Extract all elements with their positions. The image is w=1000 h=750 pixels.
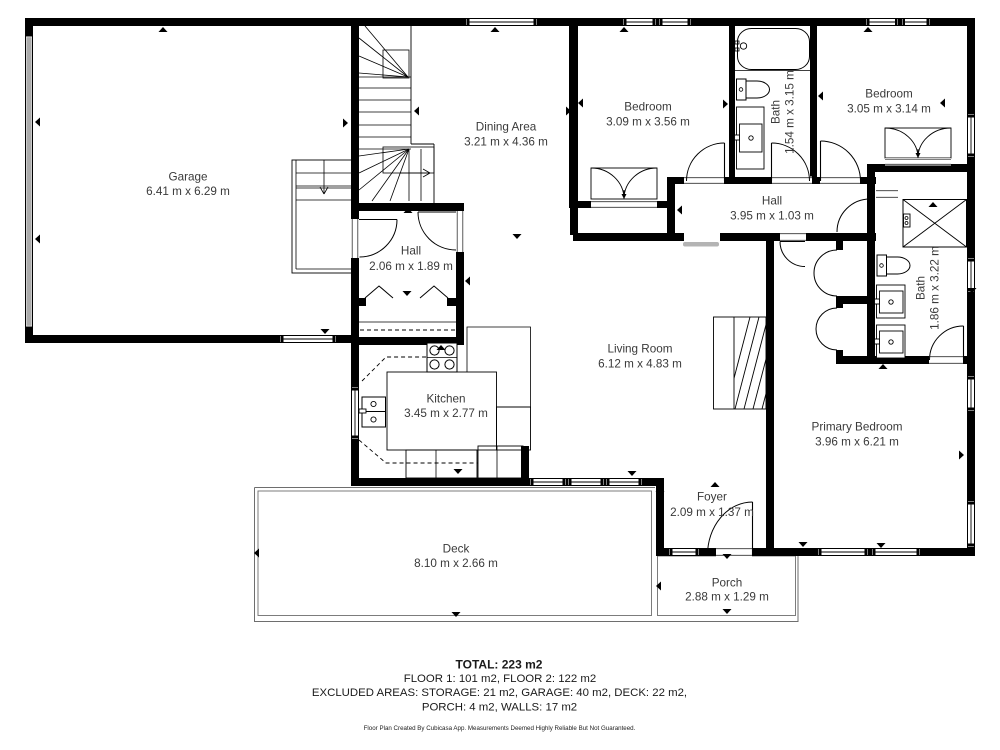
svg-text:Deck: Deck xyxy=(443,543,470,556)
svg-text:6.41 m x 6.29 m: 6.41 m x 6.29 m xyxy=(146,185,230,198)
svg-text:Primary Bedroom: Primary Bedroom xyxy=(812,421,903,434)
svg-text:2.06 m x 1.89 m: 2.06 m x 1.89 m xyxy=(369,260,453,273)
svg-text:PORCH: 4 m2, WALLS: 17 m2: PORCH: 4 m2, WALLS: 17 m2 xyxy=(422,702,577,714)
svg-text:EXCLUDED AREAS: STORAGE: 21 m2: EXCLUDED AREAS: STORAGE: 21 m2, GARAGE: … xyxy=(312,687,687,699)
svg-text:3.96 m x 6.21 m: 3.96 m x 6.21 m xyxy=(815,436,899,449)
svg-text:3.05 m x 3.14 m: 3.05 m x 3.14 m xyxy=(847,103,931,116)
svg-text:Porch: Porch xyxy=(712,577,743,590)
svg-text:Dining Area: Dining Area xyxy=(476,121,537,134)
svg-text:Hall: Hall xyxy=(762,195,782,208)
svg-text:Bath: Bath xyxy=(915,276,928,300)
svg-text:FLOOR 1: 101 m2, FLOOR 2: 122: FLOOR 1: 101 m2, FLOOR 2: 122 m2 xyxy=(404,673,596,685)
svg-text:3.45 m x 2.77 m: 3.45 m x 2.77 m xyxy=(404,407,488,420)
svg-text:8.10 m x 2.66 m: 8.10 m x 2.66 m xyxy=(414,557,498,570)
svg-text:1.86 m x 3.22 m: 1.86 m x 3.22 m xyxy=(929,246,942,330)
svg-text:3.21 m x 4.36 m: 3.21 m x 4.36 m xyxy=(464,136,548,149)
svg-text:Hall: Hall xyxy=(401,245,421,258)
svg-text:6.12 m x 4.83 m: 6.12 m x 4.83 m xyxy=(598,358,682,371)
svg-text:Kitchen: Kitchen xyxy=(427,393,466,406)
svg-text:1.54 m x 3.15 m: 1.54 m x 3.15 m xyxy=(784,70,797,154)
svg-text:2.88 m x 1.29 m: 2.88 m x 1.29 m xyxy=(685,591,769,604)
svg-text:Floor Plan Created By Cubicasa: Floor Plan Created By Cubicasa App. Meas… xyxy=(364,725,636,732)
svg-text:2.09 m x 1.37 m: 2.09 m x 1.37 m xyxy=(670,506,754,519)
svg-text:Bedroom: Bedroom xyxy=(865,88,912,101)
svg-text:Living Room: Living Room xyxy=(608,343,673,356)
svg-text:Bath: Bath xyxy=(770,100,783,124)
svg-text:Bedroom: Bedroom xyxy=(624,101,671,114)
svg-text:Garage: Garage xyxy=(169,171,208,184)
svg-text:TOTAL: 223 m2: TOTAL: 223 m2 xyxy=(456,658,543,672)
svg-text:Foyer: Foyer xyxy=(697,491,727,504)
svg-text:3.95 m x 1.03 m: 3.95 m x 1.03 m xyxy=(730,210,814,223)
svg-text:3.09 m x 3.56 m: 3.09 m x 3.56 m xyxy=(606,116,690,129)
